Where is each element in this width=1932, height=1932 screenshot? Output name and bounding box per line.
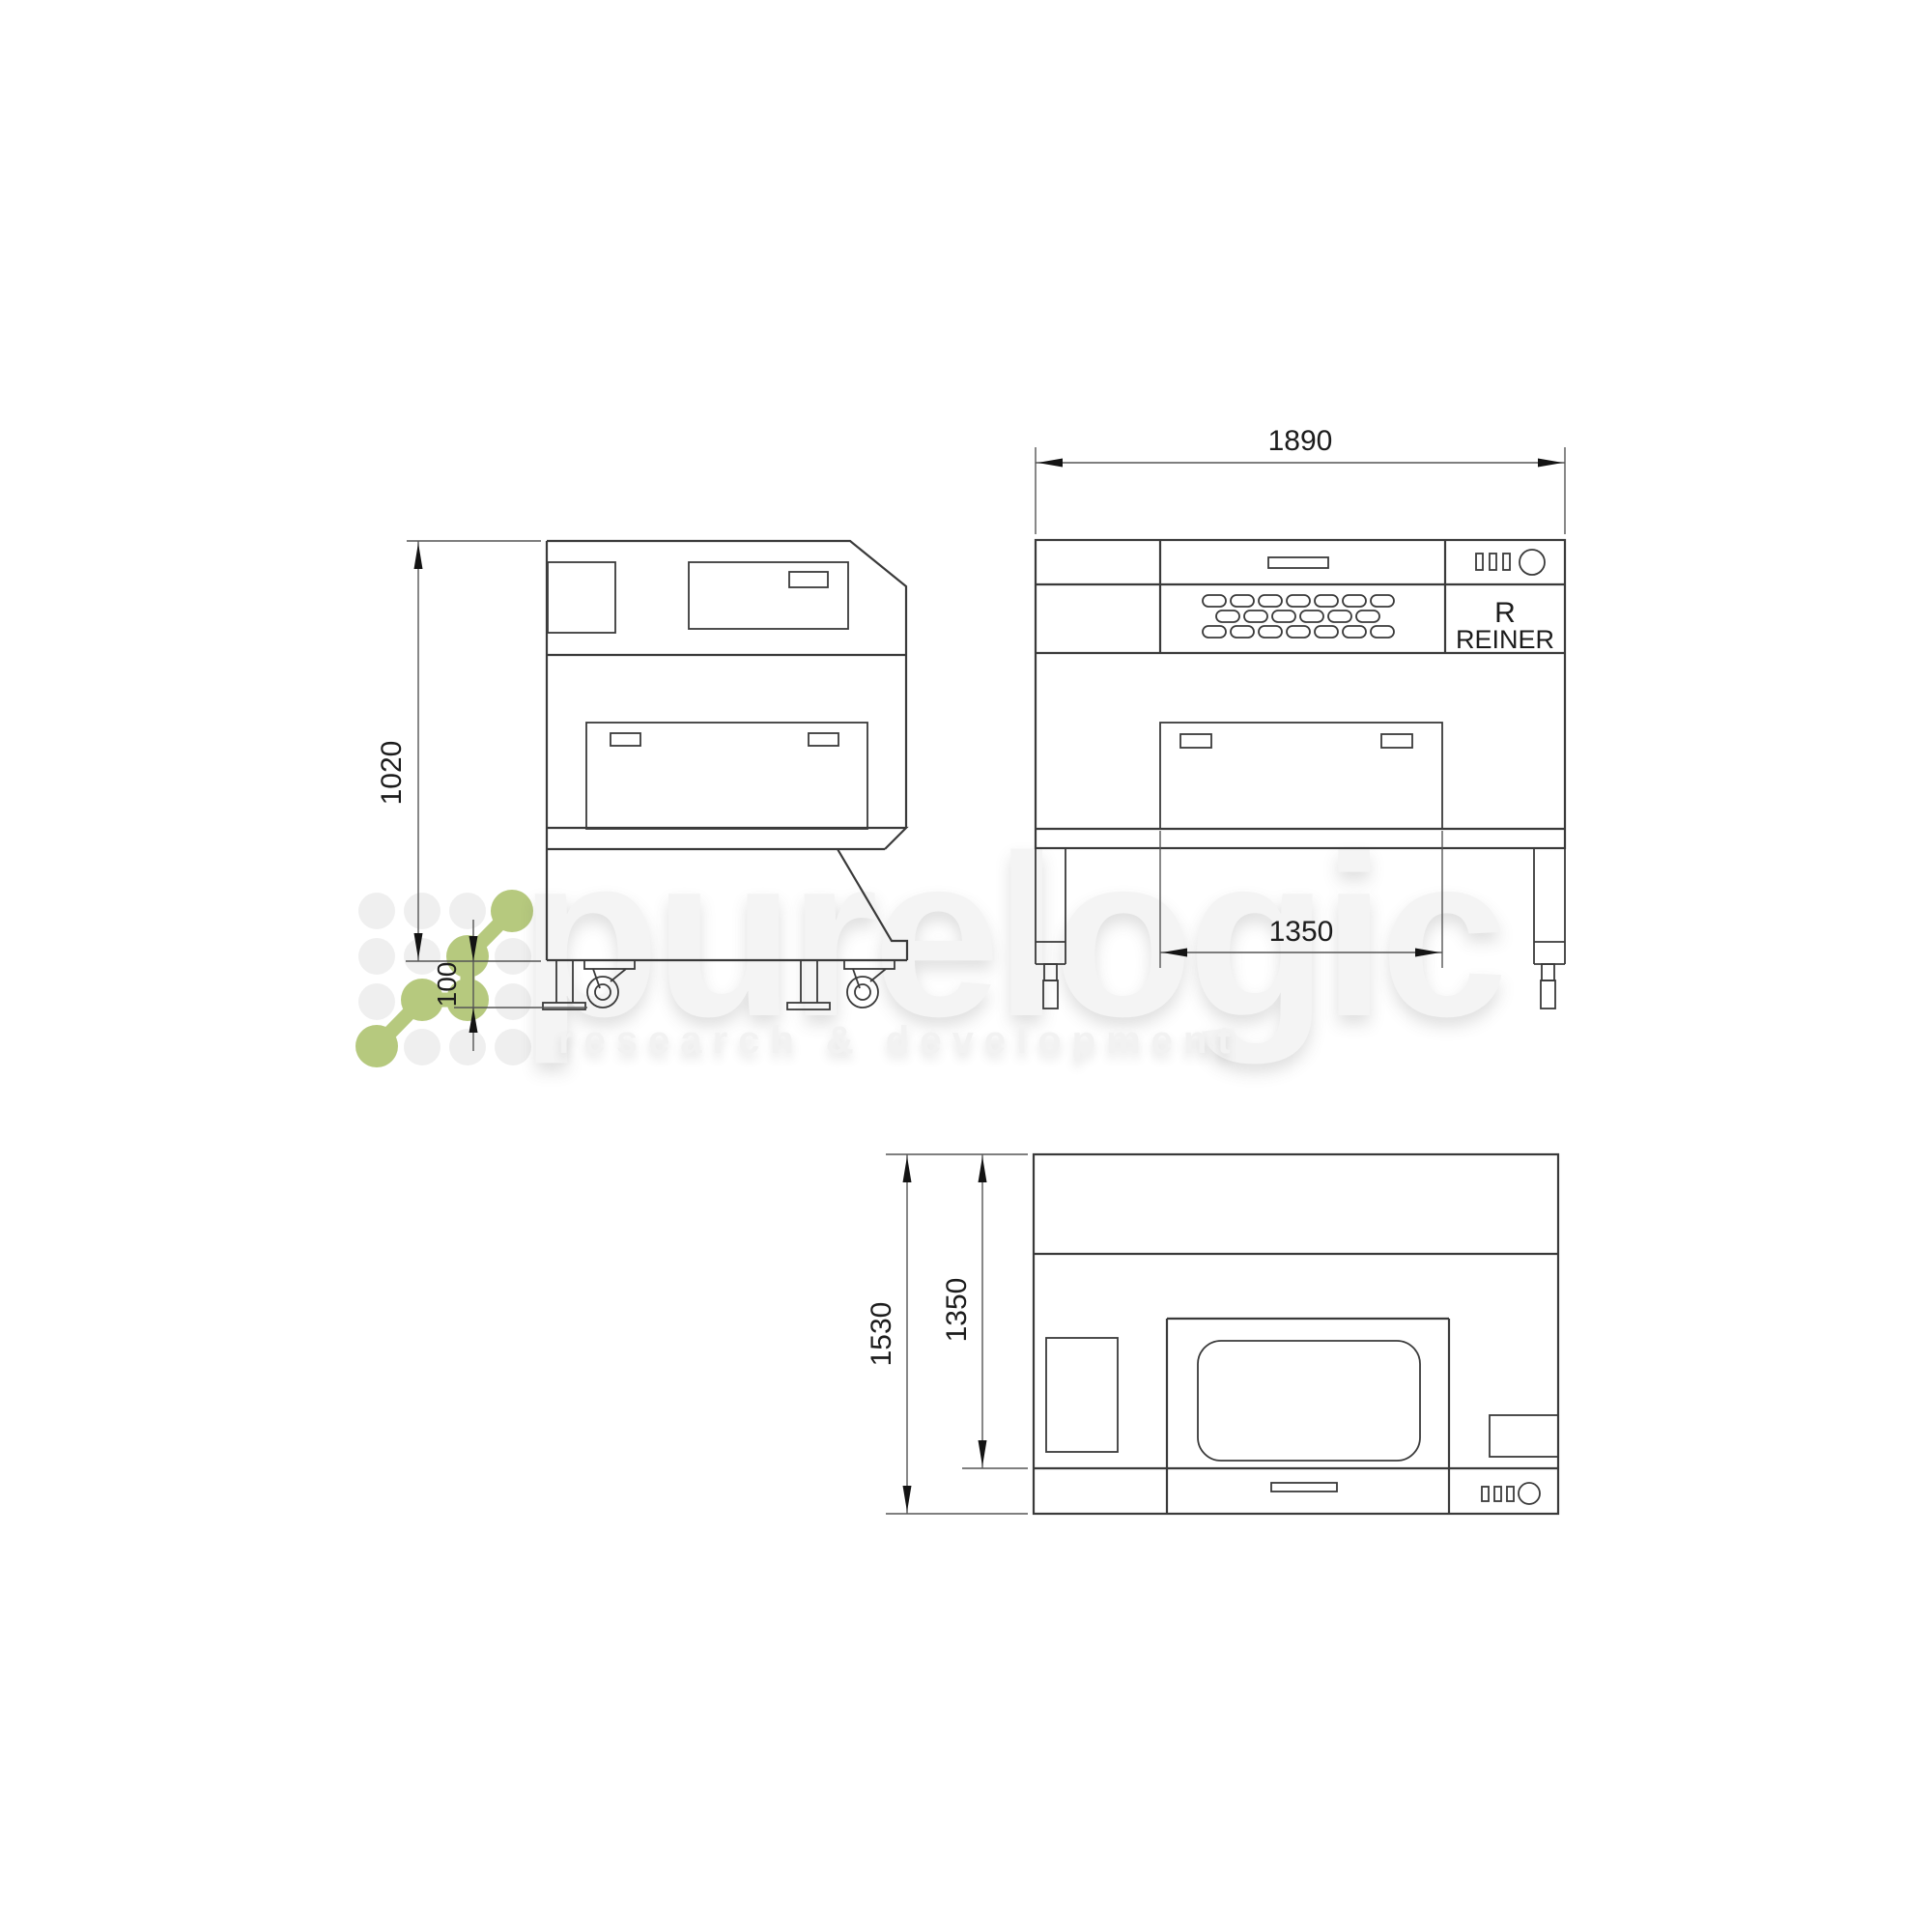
front-view-brand-panel: R REINER bbox=[1456, 597, 1554, 654]
side-view-leveling-foot-right bbox=[787, 960, 830, 1009]
front-view: R REINER bbox=[1036, 425, 1565, 1009]
side-view-caster-right bbox=[844, 960, 895, 1008]
front-view-lid-handle bbox=[1268, 557, 1328, 568]
three-view-technical-drawing: 1020 100 bbox=[0, 0, 1932, 1932]
dimension-label-1020: 1020 bbox=[376, 741, 408, 806]
top-view-window bbox=[1198, 1341, 1420, 1461]
dimension-top-body-depth: 1350 bbox=[941, 1154, 1028, 1468]
top-view-control-recess bbox=[1046, 1338, 1118, 1452]
side-view-leveling-foot-left bbox=[543, 960, 585, 1009]
drawing-canvas: purelogic research & development bbox=[0, 0, 1932, 1932]
dimension-label-1350-front: 1350 bbox=[1269, 916, 1334, 948]
front-view-leg-right bbox=[1534, 848, 1565, 1009]
dimension-front-table-width: 1350 bbox=[1160, 831, 1442, 968]
side-view-caster-left bbox=[584, 960, 635, 1008]
front-view-body-outline bbox=[1036, 540, 1565, 848]
top-view: 1530 1350 bbox=[866, 1154, 1558, 1514]
top-view-indicator-lights bbox=[1482, 1487, 1514, 1501]
dimension-foot-height: 100 bbox=[432, 920, 587, 1051]
front-view-leg-left bbox=[1036, 848, 1065, 1009]
top-view-power-button bbox=[1519, 1483, 1540, 1504]
side-view-front-door bbox=[586, 723, 867, 829]
front-view-door bbox=[1160, 723, 1442, 829]
side-view: 1020 100 bbox=[376, 541, 907, 1051]
top-view-front-handle bbox=[1271, 1483, 1337, 1492]
dimension-side-height: 1020 bbox=[376, 541, 541, 961]
top-view-side-module bbox=[1490, 1415, 1558, 1457]
dimension-label-100: 100 bbox=[432, 962, 462, 1008]
dimension-front-width: 1890 bbox=[1036, 425, 1565, 534]
side-view-body-outline bbox=[547, 541, 907, 960]
front-view-power-button bbox=[1520, 550, 1545, 575]
side-view-windows bbox=[548, 562, 848, 633]
front-view-vent-grille bbox=[1203, 595, 1394, 638]
brand-name: REINER bbox=[1456, 625, 1554, 654]
front-view-indicator-lights bbox=[1476, 554, 1510, 570]
dimension-label-1530: 1530 bbox=[866, 1302, 897, 1367]
dimension-label-1350-top: 1350 bbox=[941, 1278, 973, 1343]
dimension-label-1890: 1890 bbox=[1268, 425, 1333, 457]
